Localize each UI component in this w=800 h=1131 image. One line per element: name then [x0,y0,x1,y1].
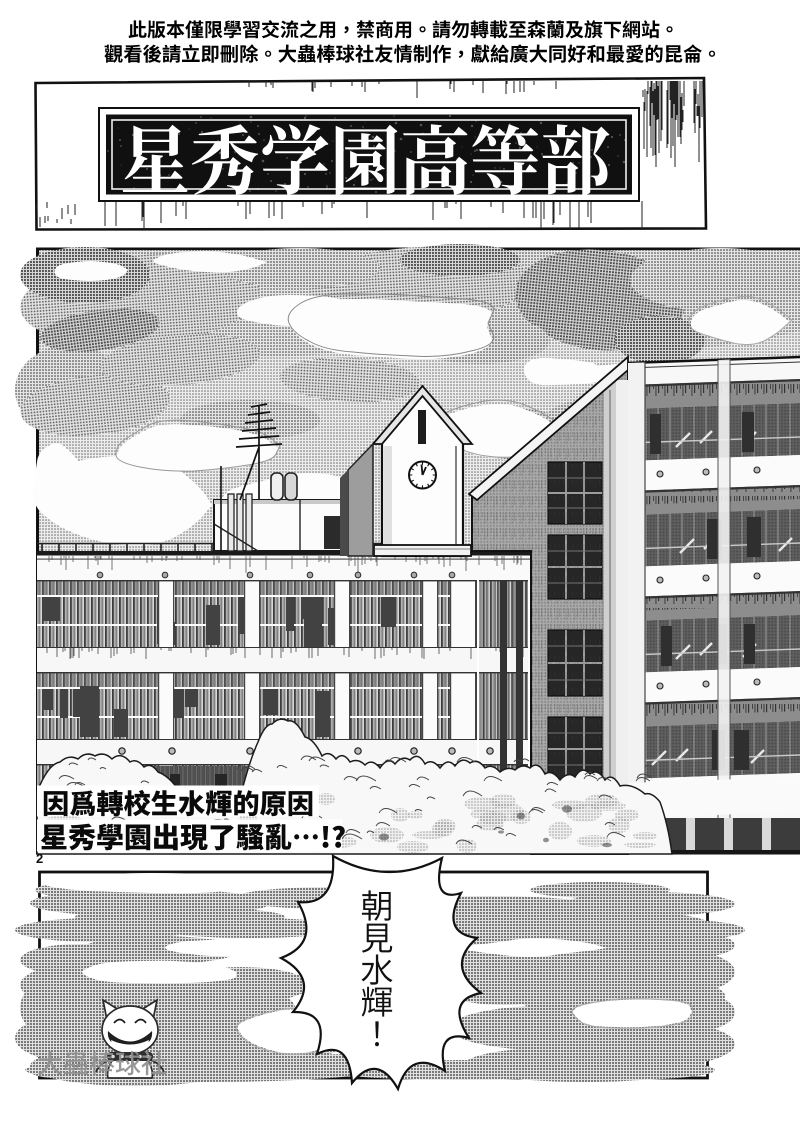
svg-text:2: 2 [36,851,43,866]
